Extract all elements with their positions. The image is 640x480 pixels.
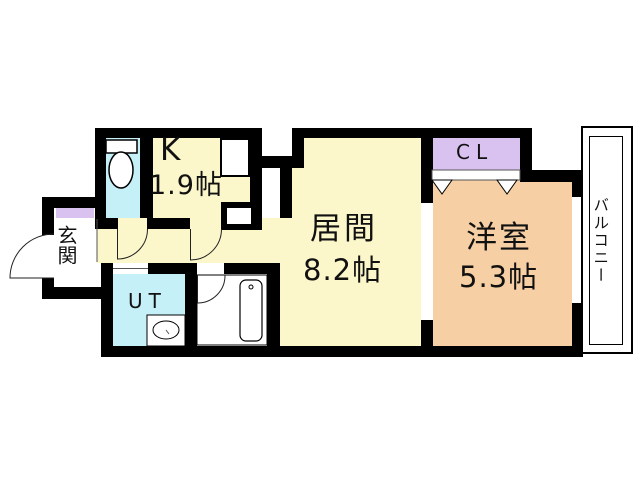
- western-room-floor: [433, 170, 572, 346]
- toilet-tank-icon: [106, 140, 137, 153]
- floorplan-canvas: K 1.9帖 居間 8.2帖 洋室 5.3帖 CL UT 玄関 バルコニー: [0, 0, 640, 480]
- living-room-label: 居間: [310, 213, 378, 246]
- western-room-label: 洋室: [466, 222, 532, 255]
- bathtub-drain-icon: [249, 285, 253, 289]
- wall-segment: [421, 320, 433, 346]
- balcony-label: バルコニー: [592, 197, 608, 285]
- wall-segment: [267, 263, 280, 346]
- wall-segment: [101, 346, 583, 357]
- wall-segment: [42, 197, 54, 235]
- wall-segment: [421, 138, 433, 203]
- toilet-bowl-icon: [109, 152, 133, 188]
- utility-label: UT: [128, 291, 167, 312]
- living-size-label: 8.2帖: [303, 255, 382, 285]
- closet-door-track: [432, 170, 520, 180]
- wall-segment: [101, 263, 113, 357]
- closet-label: CL: [456, 142, 493, 163]
- entrance-label: 玄関: [55, 225, 76, 265]
- western-size-label: 5.3帖: [459, 262, 538, 292]
- wall-segment: [292, 128, 532, 138]
- kitchen-counter-inner: [227, 208, 251, 224]
- front-door-arc: [10, 234, 54, 278]
- kitchen-size-label: 1.9帖: [149, 172, 223, 200]
- shoe-cabinet: [56, 208, 94, 218]
- kitchen-label: K: [160, 134, 180, 167]
- wall-segment: [148, 263, 197, 274]
- wall-segment: [147, 218, 190, 229]
- kitchen-sink-icon: [221, 139, 249, 176]
- hallway-floor: [97, 218, 292, 263]
- wall-segment: [185, 274, 197, 346]
- wall-segment: [95, 218, 118, 229]
- living-room-floor-ext: [280, 218, 292, 346]
